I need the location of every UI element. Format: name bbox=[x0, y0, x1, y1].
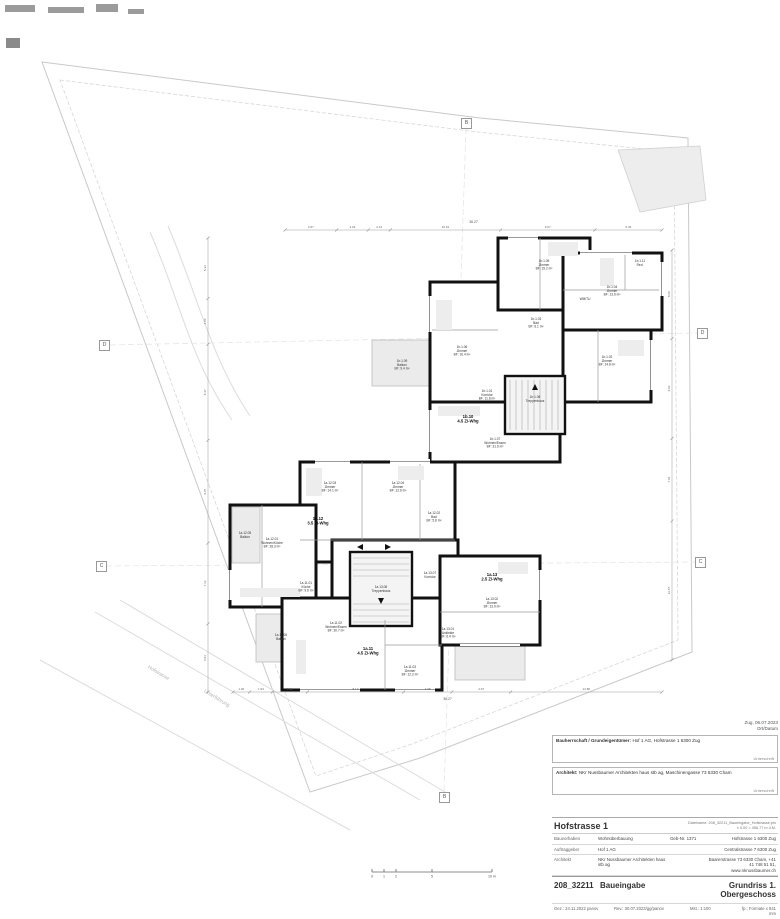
row-right: Centralstrasse 7 6300 Zug bbox=[706, 847, 776, 852]
scale-bar-label: 5 bbox=[431, 875, 433, 879]
architect-value: NKr Nussbaumer Architekten haus stb ag, … bbox=[579, 770, 732, 775]
row-label: Architekt bbox=[554, 857, 598, 873]
row-extra bbox=[670, 847, 706, 852]
drawn-by: Gez.: 24.11.2022 panov bbox=[554, 906, 614, 916]
dimension-value: 2.12 bbox=[376, 225, 382, 229]
file-info: Dateiname: 208_32211_Baueingabe_Hofstras… bbox=[688, 821, 776, 831]
dimension-value: 7.46 bbox=[667, 476, 671, 482]
sheet-title: Grundriss 1. Obergeschoss bbox=[680, 881, 776, 899]
level-datum: ± 0.00 = 456.77 m ü.M. bbox=[688, 826, 776, 831]
dimension-value: 8.00 bbox=[667, 291, 671, 297]
scale-bar: 012510 m bbox=[371, 869, 496, 879]
room-label: 1a.11.06Balkon bbox=[275, 633, 287, 641]
row-value: Hof 1 AG bbox=[598, 847, 670, 852]
grid-marker-b-bottom: B bbox=[439, 792, 450, 803]
titleblock-meta-row: Gez.: 24.11.2022 panov Rev.: 30.07.2023/… bbox=[552, 904, 778, 919]
dimension-total: 36.27 bbox=[443, 697, 452, 701]
dimension-value: 6.01 bbox=[203, 655, 207, 661]
dimension-value: 12.57 bbox=[667, 586, 671, 594]
row-extra bbox=[670, 857, 706, 873]
owner-value: Hof 1 AG, Hofstrasse 1 6300 Zug bbox=[632, 738, 700, 743]
grid-marker-c-left: C bbox=[96, 561, 107, 572]
scale-bar-label: 0 bbox=[371, 875, 373, 879]
signature-box-architect: Architekt: NKr Nussbaumer Architekten ha… bbox=[552, 767, 778, 795]
dimension-value: 4.04 bbox=[203, 318, 207, 324]
floorplan-sheet: { "notes": { "date": "Zug, 06.07.2023", … bbox=[0, 0, 780, 888]
room-label: 1a.13.07Korridor bbox=[424, 571, 437, 579]
dimension-value: 6.46 bbox=[626, 225, 632, 229]
scale-bar-label: 1 bbox=[383, 875, 385, 879]
date-block: Zug, 06.07.2023 Ort/Datum bbox=[552, 720, 778, 731]
dimension-value: 4.97 bbox=[478, 687, 484, 691]
title-block: Hofstrasse 1 Dateiname: 208_32211_Bauein… bbox=[552, 817, 778, 918]
titleblock-row-architekt: Architekt NKr Nussbaumer Architekten hau… bbox=[552, 855, 778, 876]
row-extra: Geb-Nr. 1371 bbox=[670, 836, 706, 841]
dimension-value: 8.13 bbox=[353, 687, 359, 691]
dimension-value: 3.04 bbox=[350, 225, 356, 229]
architect-label: Architekt: bbox=[556, 770, 577, 775]
grid-marker-d-left: D bbox=[99, 340, 110, 351]
row-label: Bauvorhaben bbox=[554, 836, 598, 841]
dimension-total: 36.27 bbox=[469, 220, 478, 224]
room-label: 1a.13.01AnkleideBF: 6.4 m² bbox=[441, 627, 456, 639]
owner-signature-caption: Unterschrift bbox=[754, 756, 774, 761]
dimension-value: 10.61 bbox=[442, 225, 450, 229]
row-value: Wohnüberbauung bbox=[598, 836, 670, 841]
sheet-right-column: Zug, 06.07.2023 Ort/Datum Bauherrschaft … bbox=[552, 720, 778, 919]
scale: Mst.: 1:100 bbox=[690, 906, 734, 916]
dimension-value: 4.97 bbox=[308, 225, 314, 229]
signature-box-owner: Bauherrschaft / Grundeigentümer: Hof 1 A… bbox=[552, 735, 778, 763]
titleblock-row-bauvorhaben: Bauvorhaben Wohnüberbauung Geb-Nr. 1371 … bbox=[552, 834, 778, 844]
project-number: 208_32211 bbox=[554, 881, 600, 890]
architect-signature-caption: Unterschrift bbox=[754, 788, 774, 793]
titleblock-main-row: 208_32211 Baueingabe Grundriss 1. Oberge… bbox=[552, 876, 778, 904]
format: fp.: Formate x 841 mm bbox=[734, 906, 776, 916]
grid-marker-b-top: B bbox=[461, 118, 472, 129]
phase-label: Baueingabe bbox=[600, 881, 680, 890]
scan-marks bbox=[5, 4, 144, 48]
row-right: Hofstrasse 1 6300 Zug bbox=[706, 836, 776, 841]
row-value: NKr Nussbaumer Architekten haus stb ag bbox=[598, 857, 670, 873]
dimension-value: 1.40 bbox=[238, 687, 244, 691]
dimension-value: 7.13 bbox=[203, 580, 207, 586]
dimension-value: 1.93 bbox=[258, 687, 264, 691]
dimension-value: 9.07 bbox=[545, 225, 551, 229]
dimension-value: 2.96 bbox=[287, 687, 293, 691]
scale-bar-label: 10 m bbox=[488, 875, 496, 879]
room-label: WM/TU bbox=[580, 297, 591, 301]
scale-bar-label: 2 bbox=[395, 875, 397, 879]
dimension-value: 9.07 bbox=[203, 488, 207, 494]
row-label: Auftraggeber bbox=[554, 847, 598, 852]
dimension-value: 9.03 bbox=[667, 385, 671, 391]
row-right: Baarerstrasse 73 6330 Cham, +41 41 748 5… bbox=[706, 857, 776, 873]
room-label: 1a.12.05Balkon bbox=[239, 531, 252, 539]
revision: Rev.: 30.07.2023/gg/panov bbox=[614, 906, 690, 916]
dimension-value: 5.34 bbox=[203, 265, 207, 271]
dimension-value: 12.80 bbox=[583, 687, 591, 691]
titleblock-row-auftraggeber: Auftraggeber Hof 1 AG Centralstrasse 7 6… bbox=[552, 845, 778, 855]
grid-marker-c-right: C bbox=[695, 557, 706, 568]
date-caption: Ort/Datum bbox=[552, 726, 778, 732]
grid-marker-d-right: D bbox=[697, 328, 708, 339]
dimension-value: 8.47 bbox=[203, 389, 207, 395]
existing-building bbox=[618, 146, 706, 212]
dimension-value: 4.08 bbox=[425, 687, 431, 691]
project-title: Hofstrasse 1 bbox=[554, 821, 608, 831]
owner-label: Bauherrschaft / Grundeigentümer: bbox=[556, 738, 631, 743]
